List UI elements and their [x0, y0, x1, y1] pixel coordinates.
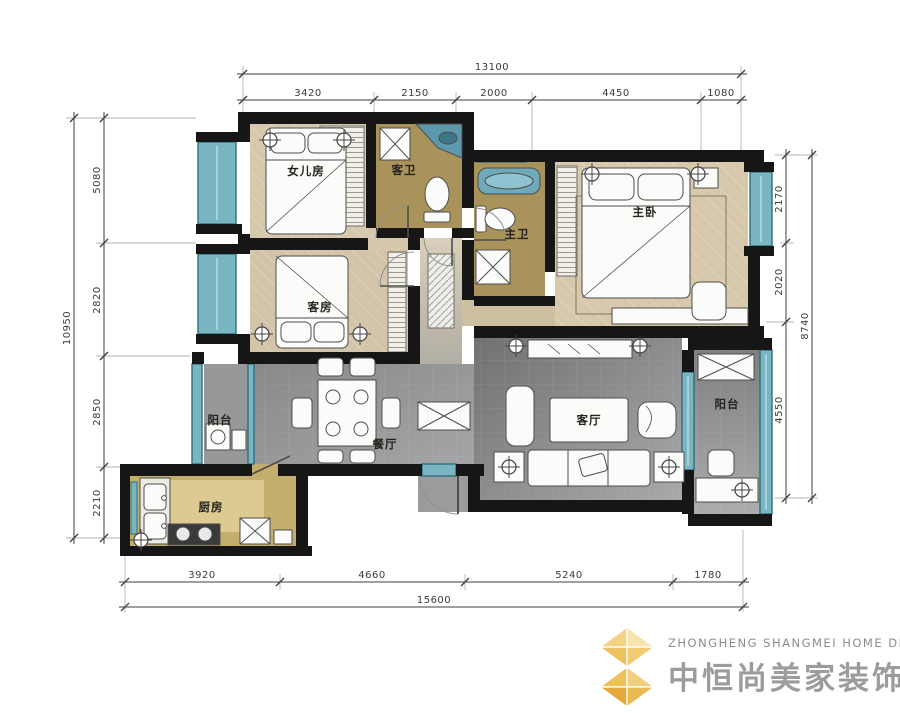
label-guest-bath: 客卫: [391, 163, 417, 177]
floorplan-drawing: 女儿房 客卫 主卫 主卧 客房 阳台 餐厅 客厅 阳台 厨房: [0, 0, 900, 713]
label-kitchen: 厨房: [199, 500, 224, 514]
dim-top-total: 13100: [475, 62, 509, 73]
label-master-bedroom: 主卧: [633, 205, 658, 219]
living-armchair: [638, 402, 676, 438]
svg-text:3920: 3920: [188, 570, 215, 581]
svg-text:5240: 5240: [555, 570, 582, 581]
svg-text:2850: 2850: [92, 398, 103, 425]
chaise: [506, 386, 534, 446]
company-logo: ZHONGHENG SHANGMEI HOME DECORATION 中恒尚美家…: [598, 627, 892, 707]
guest-toilet: [425, 177, 449, 211]
label-living: 客厅: [576, 413, 602, 427]
svg-text:5080: 5080: [92, 166, 103, 193]
master-tv-cabinet: [612, 308, 748, 324]
svg-text:2020: 2020: [774, 268, 785, 295]
kitchen-cart: [274, 530, 292, 544]
balcony-shelf: [232, 430, 246, 450]
label-daughter-room: 女儿房: [287, 164, 325, 178]
svg-text:2170: 2170: [774, 185, 785, 212]
label-balcony-left: 阳台: [208, 413, 233, 427]
label-dining: 餐厅: [372, 437, 398, 451]
svg-text:4660: 4660: [358, 570, 385, 581]
svg-text:4550: 4550: [774, 396, 785, 423]
master-armchair: [692, 282, 726, 320]
dining-table: [318, 380, 376, 446]
tv-console: [528, 340, 632, 358]
floorplan-page: 女儿房 客卫 主卫 主卧 客房 阳台 餐厅 客厅 阳台 厨房: [0, 0, 900, 713]
dim-right-total: 8740: [800, 312, 811, 339]
label-guest-room: 客房: [307, 300, 333, 314]
balcony-left-door: [248, 364, 254, 464]
svg-text:4450: 4450: [602, 88, 629, 99]
logo-text: ZHONGHENG SHANGMEI HOME DECORATION 中恒尚美家…: [668, 636, 900, 698]
daughter-bed: [266, 128, 346, 234]
svg-text:2000: 2000: [480, 88, 507, 99]
logo-diamond-icon: [598, 625, 656, 709]
svg-text:2210: 2210: [92, 489, 103, 516]
balcony-chair: [708, 450, 734, 476]
label-master-bath: 主卫: [505, 227, 530, 241]
svg-text:2150: 2150: [401, 88, 428, 99]
entry-threshold: [422, 464, 456, 476]
logo-chinese-name: 中恒尚美家装饰: [668, 653, 900, 698]
dim-bottom-total: 15600: [417, 595, 451, 606]
label-balcony-right: 阳台: [715, 397, 740, 411]
guest-toilet-tank: [424, 212, 450, 222]
logo-english-name: ZHONGHENG SHANGMEI HOME DECORATION: [668, 636, 900, 650]
svg-text:1080: 1080: [707, 88, 734, 99]
svg-text:3420: 3420: [294, 88, 321, 99]
kitchen-window: [131, 482, 137, 534]
svg-text:2820: 2820: [92, 286, 103, 313]
dim-left-total: 10950: [62, 311, 73, 345]
balcony-left-glazing: [192, 364, 202, 464]
svg-text:1780: 1780: [694, 570, 721, 581]
